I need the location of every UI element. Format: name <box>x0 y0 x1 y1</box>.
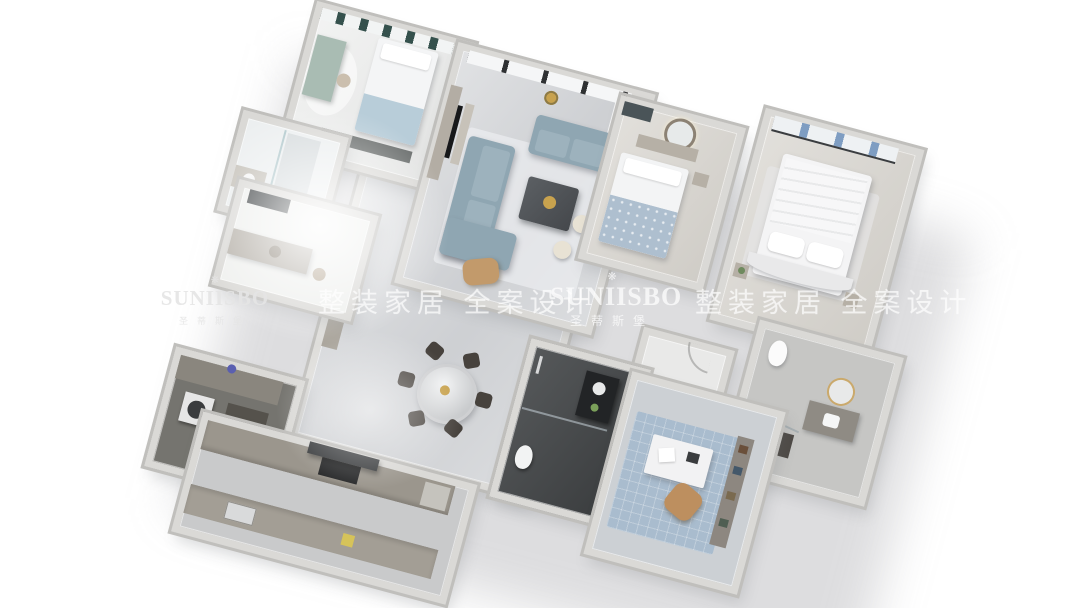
sofa-cushion <box>534 129 571 159</box>
nightstand <box>842 292 859 309</box>
books <box>725 491 736 501</box>
nightstand <box>732 262 749 279</box>
mirror-panel <box>247 189 291 213</box>
vanity-counter <box>802 400 860 442</box>
sink <box>223 501 257 526</box>
sofa-cushion <box>569 138 606 168</box>
plant <box>590 403 600 413</box>
dark-curtain <box>621 101 654 122</box>
paper <box>658 448 675 463</box>
door-swing <box>682 342 714 374</box>
flower-vase <box>226 363 237 374</box>
nightstand <box>692 172 710 188</box>
gold-plant <box>542 195 558 211</box>
laptop <box>686 451 700 464</box>
plant <box>737 266 746 275</box>
toilet <box>513 443 536 471</box>
decor-bowl <box>268 244 283 259</box>
pillows <box>623 157 683 187</box>
dresser-counter <box>227 228 313 274</box>
kitchen-item <box>340 533 355 548</box>
vanity-mirror <box>824 375 858 409</box>
apartment-3d-plan <box>28 0 1063 608</box>
books <box>738 445 749 455</box>
patterned-blanket <box>598 194 678 258</box>
dining-chair <box>407 410 425 428</box>
dining-chair <box>462 352 480 370</box>
lounge-chair <box>462 257 500 286</box>
toilet <box>766 338 790 368</box>
dining-chair <box>474 391 493 410</box>
bed-secondary <box>354 37 439 146</box>
pillow <box>766 230 806 259</box>
bed-guest <box>598 152 689 259</box>
dining-chair <box>397 370 416 389</box>
table-centerpiece <box>439 384 451 396</box>
sink-bowl <box>822 413 841 430</box>
fridge <box>419 481 450 511</box>
stool <box>311 266 327 282</box>
floorplan-render: ❋ SUNIISBO 圣蒂斯堡 整装家居 全案设计 ❋ SUNIISBO 圣蒂斯… <box>0 0 1080 608</box>
dining-chair <box>424 340 446 362</box>
books <box>732 466 743 476</box>
shower-fixture <box>535 356 543 374</box>
dark-vanity <box>575 370 620 423</box>
floor-plant-gold <box>543 89 560 106</box>
books <box>718 518 729 528</box>
pillow <box>805 241 845 270</box>
duvet <box>770 158 868 243</box>
sink-bowl <box>591 381 607 397</box>
